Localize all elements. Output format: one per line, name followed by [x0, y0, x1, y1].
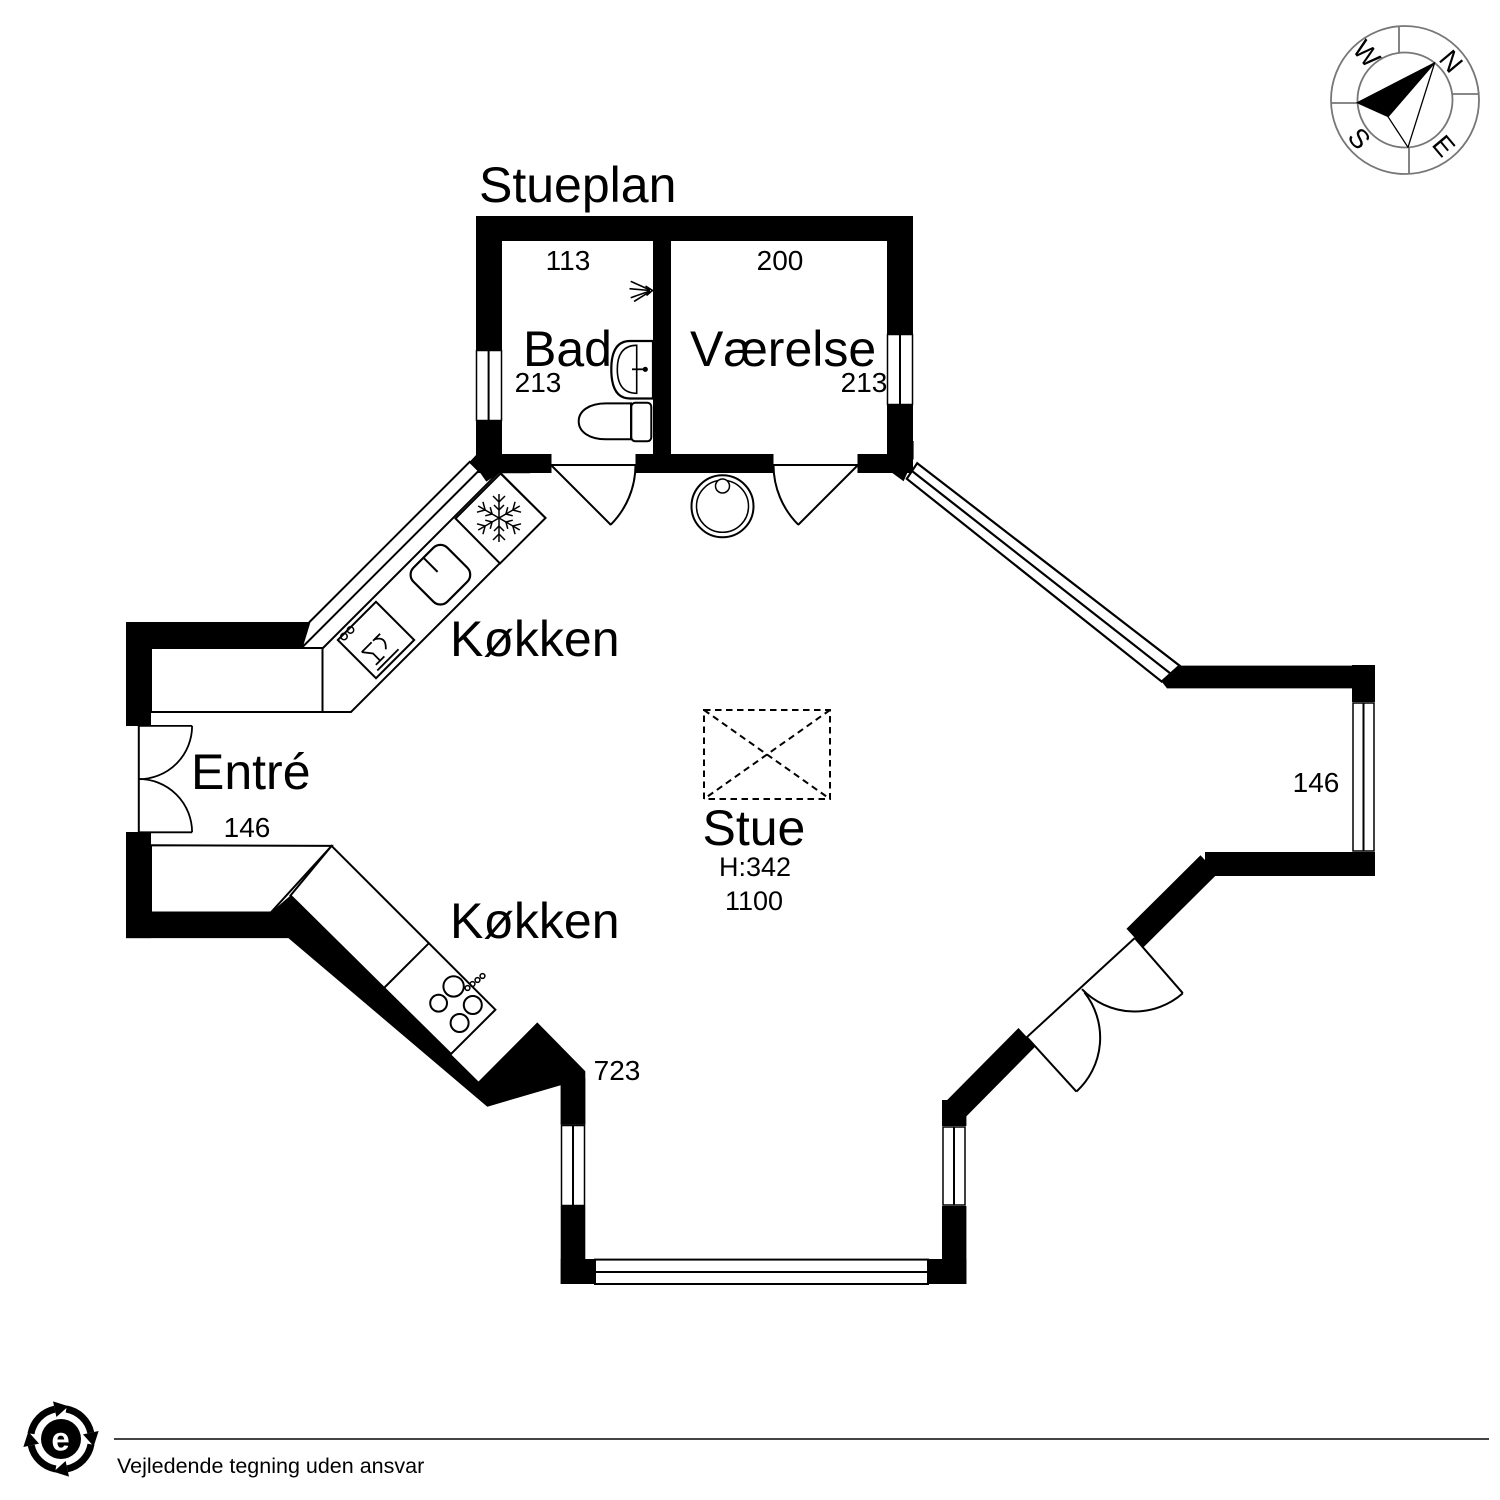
svg-text:213: 213	[841, 367, 888, 398]
svg-text:146: 146	[1293, 767, 1340, 798]
svg-text:Køkken: Køkken	[450, 893, 620, 949]
svg-text:Stue: Stue	[703, 800, 806, 856]
svg-text:1100: 1100	[725, 886, 783, 916]
svg-text:200: 200	[757, 245, 804, 276]
svg-text:213: 213	[515, 367, 562, 398]
svg-text:113: 113	[546, 245, 591, 276]
svg-text:Vejledende tegning uden ansvar: Vejledende tegning uden ansvar	[117, 1454, 424, 1478]
svg-text:H:342: H:342	[719, 852, 791, 882]
svg-text:Stueplan: Stueplan	[479, 157, 676, 213]
svg-text:723: 723	[594, 1055, 641, 1086]
svg-text:146: 146	[224, 812, 271, 843]
svg-text:Køkken: Køkken	[450, 611, 620, 667]
svg-text:Entré: Entré	[191, 744, 311, 800]
svg-text:e: e	[51, 1421, 69, 1458]
